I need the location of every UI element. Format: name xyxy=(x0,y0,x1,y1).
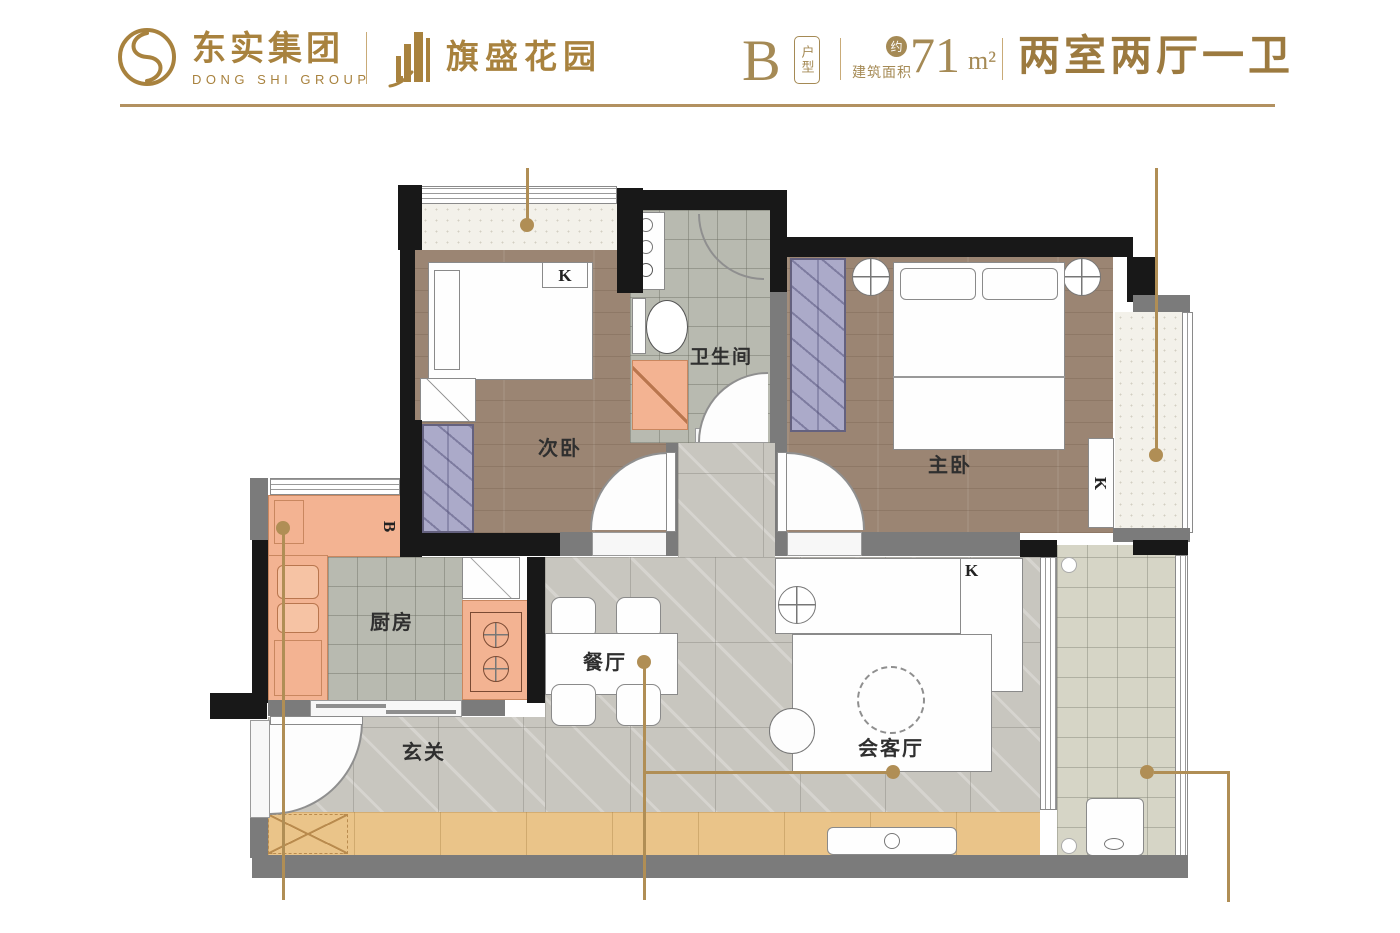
living-round-table-large xyxy=(857,666,925,734)
leader-line-utility-v xyxy=(1227,771,1230,902)
foyer-label: 玄关 xyxy=(402,742,446,762)
entry-door-threshold xyxy=(250,720,270,818)
brand-company-en: DONG SHI GROUP xyxy=(192,72,371,87)
toilet-tank xyxy=(632,298,646,354)
kitchen-sliding-door xyxy=(310,700,462,717)
bedroom2-door-threshold xyxy=(592,532,668,556)
master-balcony-window xyxy=(1182,312,1193,533)
kitchen-b-marker: B xyxy=(381,521,398,532)
project-name: 旗盛花园 xyxy=(446,40,602,73)
bathroom-label: 卫生间 xyxy=(690,348,753,367)
leader-dot-dining xyxy=(637,655,651,669)
bathroom-vanity xyxy=(632,360,688,430)
brand-text-block: 东实集团 DONG SHI GROUP xyxy=(192,32,371,87)
master-ac-unit: K xyxy=(1088,438,1114,528)
leader-dot-bay-window xyxy=(520,218,534,232)
leader-dot-master-balcony xyxy=(1149,448,1163,462)
living-floor-lamp xyxy=(778,586,816,624)
living-ac-label: K xyxy=(965,562,978,579)
header-divider-2 xyxy=(840,38,841,80)
living-label: 会客厅 xyxy=(858,738,924,758)
unit-letter: B xyxy=(742,32,781,90)
master-balcony-floor xyxy=(1115,312,1182,533)
header-rule xyxy=(120,104,1275,107)
wall-tl-corner xyxy=(398,185,422,250)
corridor-floor xyxy=(678,443,775,559)
wall-kitchen-bottom-left xyxy=(268,700,310,716)
area-value: 71 xyxy=(910,30,960,80)
living-round-table-small xyxy=(769,708,815,754)
wall-bathroom-right-lower xyxy=(770,292,787,443)
master-pillow-left xyxy=(900,268,976,300)
area-label: 建筑面积 xyxy=(852,62,912,82)
bedroom2-window xyxy=(420,186,617,204)
tv-unit xyxy=(884,833,900,849)
wall-living-window-corner xyxy=(1020,540,1057,557)
layout-title: 两室两厅一卫 xyxy=(1018,36,1294,78)
project-logo-icon xyxy=(388,28,438,88)
kitchen-sliding-panel-2 xyxy=(386,710,456,714)
stove-burner-2 xyxy=(483,656,509,682)
wall-corridor-left-jamb xyxy=(666,532,678,556)
wall-entry-top xyxy=(210,693,267,719)
dining-chair-3 xyxy=(551,684,596,726)
wall-utility-balcony-top xyxy=(1133,540,1188,555)
stove-burner-1 xyxy=(483,622,509,648)
brand-company-cn: 东实集团 xyxy=(192,32,371,66)
foyer-shoe-cabinet xyxy=(268,814,348,854)
header-divider-3 xyxy=(1002,38,1003,80)
leader-line-kitchen xyxy=(282,532,285,900)
leader-dot-utility-balcony xyxy=(1140,765,1154,779)
master-nightstand-right xyxy=(1063,258,1101,296)
bedroom2-ac-unit: K xyxy=(542,262,588,288)
kitchen-window xyxy=(270,478,400,495)
master-wardrobe xyxy=(790,258,846,432)
wall-bathroom-right-upper xyxy=(770,210,787,292)
leader-line-dining xyxy=(643,666,646,900)
wall-master-bottom xyxy=(862,532,1020,556)
approx-badge: 约 xyxy=(886,36,907,57)
wall-bay-bath-divider xyxy=(617,188,643,293)
master-bed-blanket-line xyxy=(893,376,1065,378)
bedroom2-door-leaf xyxy=(666,452,676,532)
master-ac-label: K xyxy=(1092,476,1109,489)
wall-kitchen-bedroom2-divider xyxy=(400,420,422,557)
living-balcony-slider xyxy=(1040,557,1057,810)
bedroom2-ac-label: K xyxy=(558,267,571,284)
wall-kitchen-left-lower xyxy=(252,540,268,703)
wall-master-balcony-top xyxy=(1133,295,1190,312)
area-unit: m² xyxy=(968,48,996,74)
kitchen-label: 厨房 xyxy=(370,612,414,632)
wall-master-top xyxy=(787,237,1133,257)
leader-line-utility-h xyxy=(1154,771,1230,774)
kitchen-sliding-panel-1 xyxy=(316,704,386,708)
toilet-bowl xyxy=(646,300,688,354)
floorplan-page: 东实集团 DONG SHI GROUP 旗盛花园 B 户型 建筑面积 约 71 … xyxy=(0,0,1400,933)
wall-kitchen-left-upper xyxy=(250,478,268,540)
bedroom2-desk xyxy=(420,378,476,422)
master-nightstand-left xyxy=(852,258,890,296)
dining-chair-4 xyxy=(616,684,661,726)
wall-bathroom-top xyxy=(643,190,787,210)
brand-emblem-icon xyxy=(116,26,178,88)
leader-line-bay-window xyxy=(526,168,529,225)
leader-dot-kitchen xyxy=(276,521,290,535)
bedroom2-wardrobe xyxy=(422,424,474,533)
wall-entry-bottom-jamb xyxy=(250,816,268,858)
fridge-space xyxy=(462,557,520,599)
master-pillow-right xyxy=(982,268,1058,300)
master-bedroom-label: 主卧 xyxy=(928,455,972,475)
dining-label: 餐厅 xyxy=(583,652,627,672)
bedroom2-pillow xyxy=(434,270,460,370)
leader-dot-living xyxy=(886,765,900,779)
bedroom2-label: 次卧 xyxy=(538,438,582,458)
wall-kitchen-bottom-right xyxy=(462,700,505,716)
leader-line-living xyxy=(645,771,888,774)
header-divider-1 xyxy=(366,32,367,84)
wall-bottom xyxy=(252,855,1188,878)
wall-bedroom2-bottom xyxy=(560,532,592,556)
wall-kitchen-right xyxy=(527,557,545,703)
master-door-threshold xyxy=(787,532,862,556)
utility-balcony-window xyxy=(1175,555,1188,858)
drain-pipe-top xyxy=(1061,557,1077,573)
washing-machine-panel xyxy=(1104,838,1124,850)
unit-type-badge: 户型 xyxy=(794,36,820,84)
leader-line-master-balcony xyxy=(1155,168,1158,455)
drain-pipe-bottom xyxy=(1061,838,1077,854)
master-door-leaf xyxy=(777,452,787,532)
